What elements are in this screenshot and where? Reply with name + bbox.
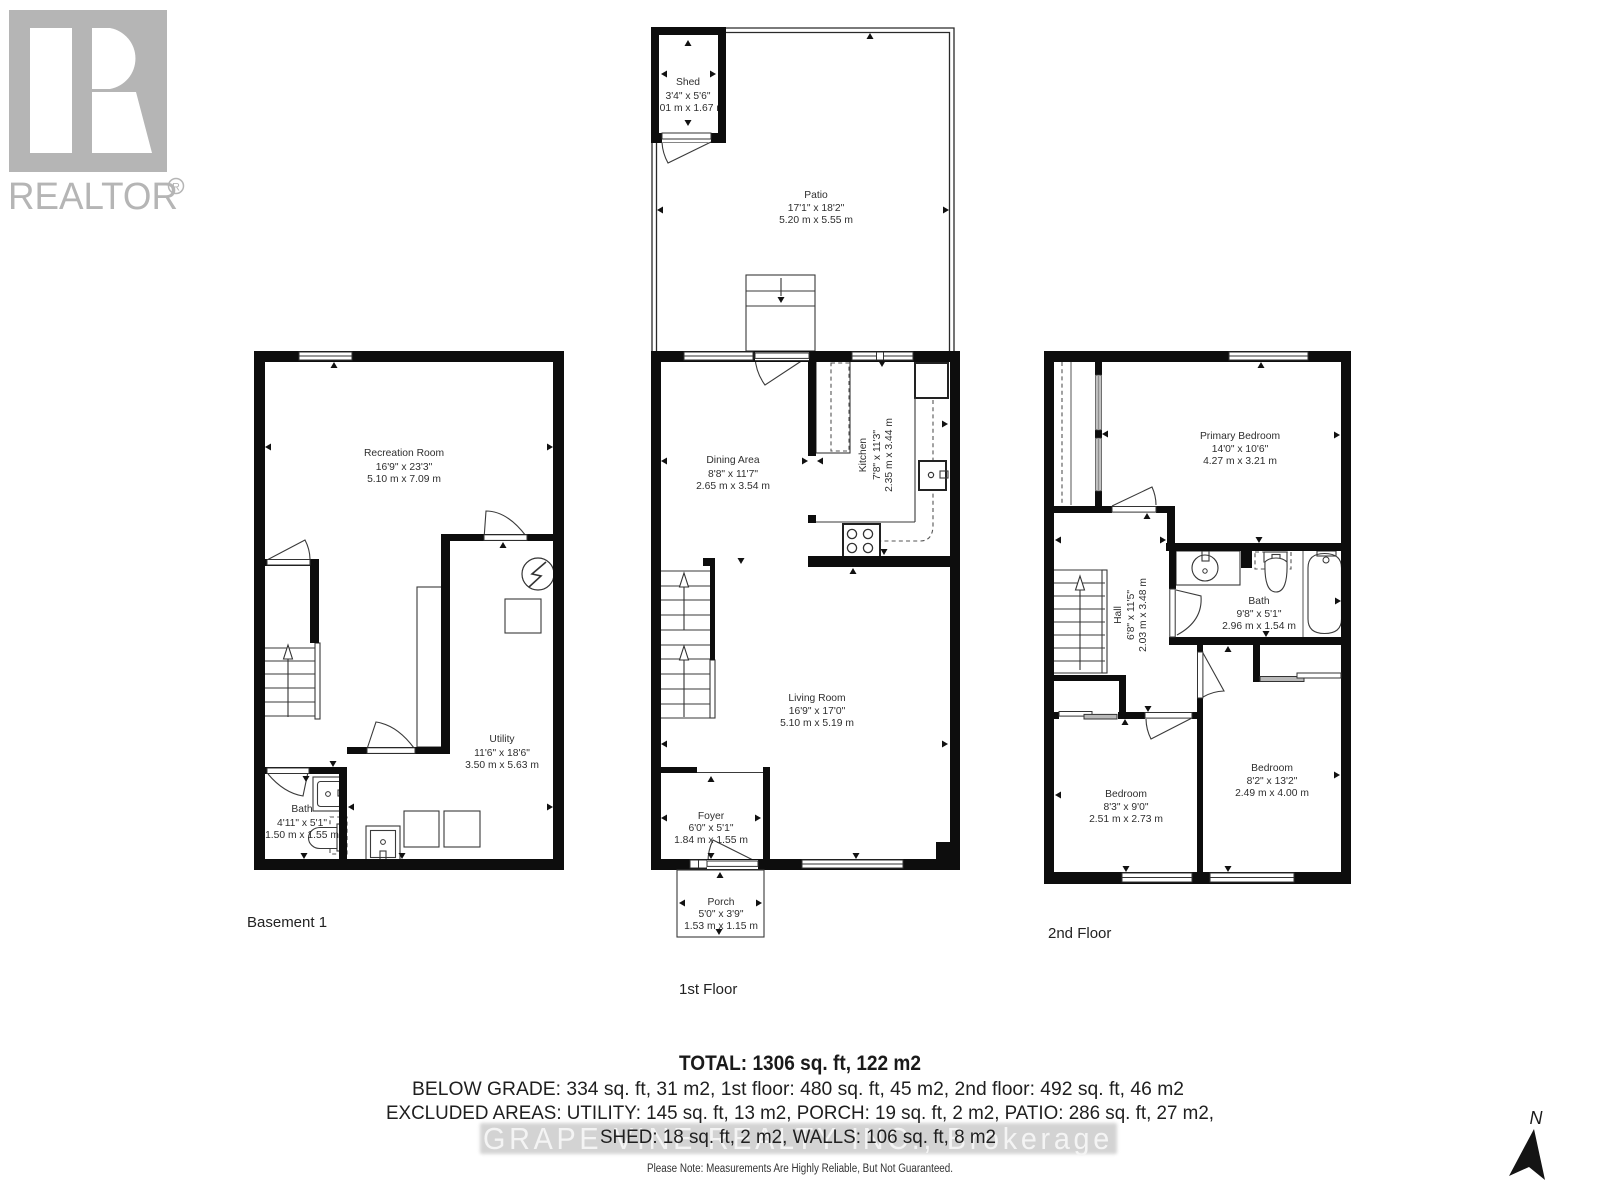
svg-text:Please Note: Measurements Are: Please Note: Measurements Are Highly Rel…: [647, 1163, 953, 1175]
svg-text:EXCLUDED AREAS: UTILITY: 145 s: EXCLUDED AREAS: UTILITY: 145 sq. ft, 13 …: [386, 1102, 1214, 1124]
svg-text:6'8" x 11'5": 6'8" x 11'5": [1126, 590, 1137, 640]
svg-text:Porch: Porch: [708, 897, 735, 908]
svg-text:BELOW GRADE: 334 sq. ft, 31 m2: BELOW GRADE: 334 sq. ft, 31 m2, 1st floo…: [412, 1078, 1184, 1100]
svg-text:5.10 m x 7.09 m: 5.10 m x 7.09 m: [367, 474, 441, 485]
svg-text:3.50 m x 5.63 m: 3.50 m x 5.63 m: [465, 760, 539, 771]
svg-text:14'0" x 10'6": 14'0" x 10'6": [1212, 444, 1269, 455]
svg-text:8'3" x 9'0": 8'3" x 9'0": [1103, 802, 1148, 813]
svg-text:REALTOR: REALTOR: [8, 176, 178, 218]
svg-text:2.49 m x 4.00 m: 2.49 m x 4.00 m: [1235, 788, 1309, 799]
svg-text:Bedroom: Bedroom: [1105, 789, 1147, 800]
svg-text:Recreation Room: Recreation Room: [364, 448, 444, 459]
svg-text:2.96 m x 1.54 m: 2.96 m x 1.54 m: [1222, 621, 1296, 632]
svg-text:Dining Area: Dining Area: [706, 455, 760, 466]
svg-text:17'1" x 18'2": 17'1" x 18'2": [788, 203, 845, 214]
svg-text:8'8" x 11'7": 8'8" x 11'7": [708, 469, 758, 480]
svg-text:7'8" x 11'3": 7'8" x 11'3": [872, 430, 883, 480]
svg-text:1.01 m x 1.67 m: 1.01 m x 1.67 m: [651, 103, 725, 114]
svg-text:R: R: [172, 182, 180, 194]
svg-text:N: N: [1530, 1108, 1544, 1128]
svg-text:Utility: Utility: [489, 734, 515, 745]
svg-text:Shed: Shed: [676, 77, 700, 88]
svg-text:SHED: 18 sq. ft, 2 m2, WALLS:: SHED: 18 sq. ft, 2 m2, WALLS: 106 sq. ft…: [600, 1126, 996, 1148]
svg-text:Bath: Bath: [1248, 596, 1269, 607]
svg-text:Patio: Patio: [804, 190, 828, 201]
svg-text:6'0" x 5'1": 6'0" x 5'1": [688, 823, 733, 834]
svg-text:11'6" x 18'6": 11'6" x 18'6": [474, 748, 530, 759]
svg-text:5'0" x 3'9": 5'0" x 3'9": [698, 909, 743, 920]
svg-text:Basement 1: Basement 1: [247, 914, 327, 931]
svg-text:16'9" x 17'0": 16'9" x 17'0": [789, 706, 846, 717]
svg-text:TOTAL: 1306 sq. ft, 122 m2: TOTAL: 1306 sq. ft, 122 m2: [679, 1052, 921, 1075]
svg-text:5.20 m x 5.55 m: 5.20 m x 5.55 m: [779, 215, 853, 226]
svg-text:Bedroom: Bedroom: [1251, 763, 1293, 774]
svg-text:4'11" x 5'1": 4'11" x 5'1": [277, 818, 327, 829]
svg-text:Living Room: Living Room: [788, 693, 845, 704]
svg-text:2nd Floor: 2nd Floor: [1048, 925, 1111, 942]
svg-text:Kitchen: Kitchen: [858, 438, 869, 473]
svg-text:2.65 m x 3.54 m: 2.65 m x 3.54 m: [696, 481, 770, 492]
svg-text:9'8" x 5'1": 9'8" x 5'1": [1236, 609, 1281, 620]
svg-text:Hall: Hall: [1113, 606, 1124, 624]
svg-text:1st Floor: 1st Floor: [679, 981, 737, 998]
svg-text:2.35 m x 3.44 m: 2.35 m x 3.44 m: [884, 418, 895, 492]
svg-text:4.27 m x 3.21 m: 4.27 m x 3.21 m: [1203, 456, 1277, 467]
svg-text:2.03 m x 3.48 m: 2.03 m x 3.48 m: [1138, 578, 1149, 652]
svg-text:Primary Bedroom: Primary Bedroom: [1200, 431, 1280, 442]
svg-text:1.84 m x 1.55 m: 1.84 m x 1.55 m: [674, 835, 748, 846]
svg-text:5.10 m x 5.19 m: 5.10 m x 5.19 m: [780, 718, 854, 729]
svg-text:16'9" x 23'3": 16'9" x 23'3": [376, 462, 433, 473]
svg-text:Bath: Bath: [291, 804, 312, 815]
svg-text:3'4" x 5'6": 3'4" x 5'6": [665, 91, 710, 102]
svg-text:1.50 m x 1.55 m: 1.50 m x 1.55 m: [265, 830, 339, 841]
svg-text:8'2" x 13'2": 8'2" x 13'2": [1247, 776, 1298, 787]
svg-text:2.51 m x 2.73 m: 2.51 m x 2.73 m: [1089, 814, 1163, 825]
svg-text:Foyer: Foyer: [698, 811, 725, 822]
